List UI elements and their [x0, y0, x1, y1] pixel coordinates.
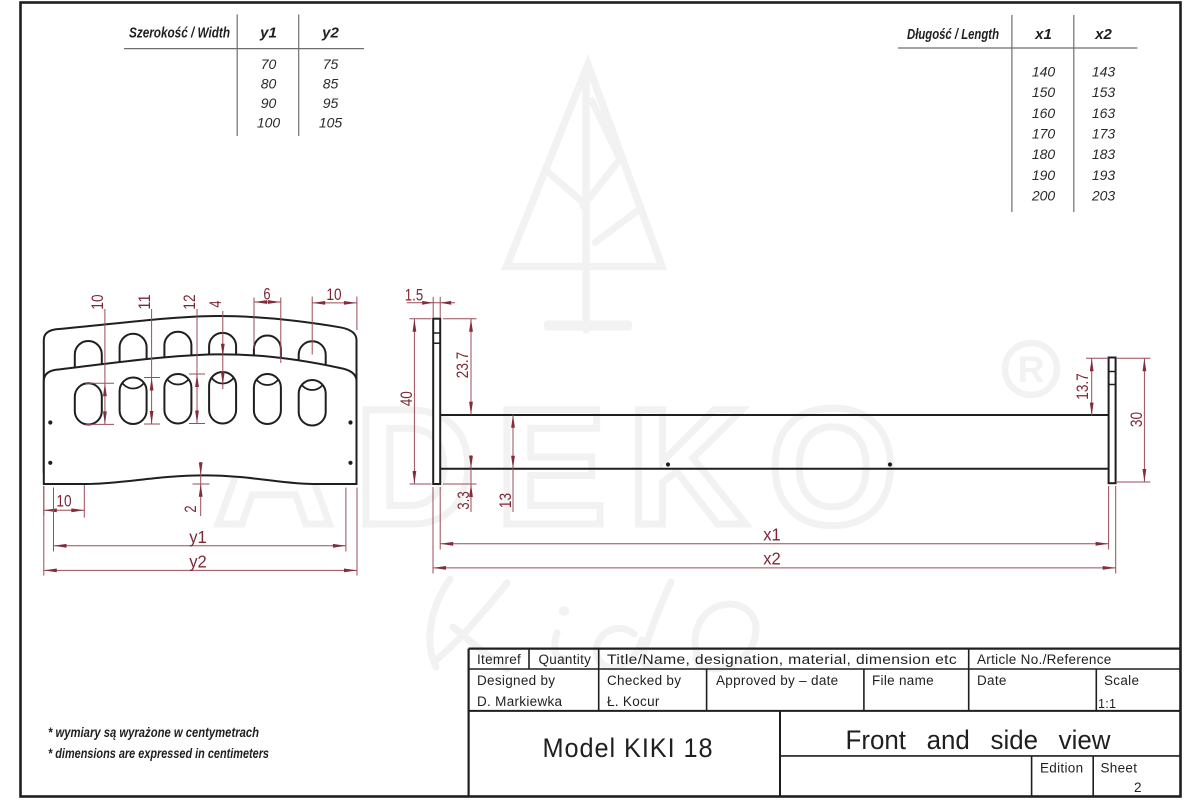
svg-text:200: 200: [1031, 187, 1056, 203]
svg-text:Edition: Edition: [1040, 761, 1083, 776]
svg-text:13.7: 13.7: [1073, 373, 1092, 399]
svg-text:* dimensions are expressed in: * dimensions are expressed in centimeter…: [48, 746, 269, 761]
svg-text:13: 13: [496, 493, 515, 508]
svg-text:Title/Name, designation, mater: Title/Name, designation, material, dimen…: [607, 652, 957, 667]
svg-text:* wymiary są wyrażone w centym: * wymiary są wyrażone w centymetrach: [48, 725, 259, 740]
svg-text:170: 170: [1032, 125, 1056, 141]
svg-text:10: 10: [88, 294, 107, 309]
svg-text:193: 193: [1092, 167, 1116, 183]
svg-text:10: 10: [56, 492, 71, 511]
svg-text:Szerokość / Width: Szerokość / Width: [129, 25, 230, 42]
svg-text:75: 75: [323, 56, 339, 72]
svg-text:y1: y1: [259, 25, 277, 42]
svg-text:x1: x1: [763, 524, 781, 544]
svg-text:163: 163: [1092, 105, 1116, 121]
svg-text:Długość / Length: Długość / Length: [907, 26, 999, 43]
svg-text:Front and side view: Front and side view: [846, 725, 1111, 755]
svg-text:2: 2: [181, 505, 200, 512]
svg-text:143: 143: [1092, 64, 1116, 80]
svg-text:203: 203: [1091, 187, 1116, 203]
svg-text:Checked by: Checked by: [607, 673, 681, 688]
svg-text:150: 150: [1032, 84, 1056, 100]
svg-text:Ł. Kocur: Ł. Kocur: [607, 694, 660, 709]
svg-text:70: 70: [261, 56, 277, 72]
svg-text:140: 140: [1032, 64, 1056, 80]
svg-text:2: 2: [1134, 780, 1142, 795]
svg-text:Article No./Reference: Article No./Reference: [977, 652, 1112, 667]
svg-text:105: 105: [319, 115, 343, 131]
svg-text:12: 12: [180, 294, 199, 309]
svg-text:90: 90: [261, 95, 277, 111]
svg-text:Date: Date: [977, 673, 1007, 688]
svg-text:173: 173: [1092, 125, 1116, 141]
svg-text:y2: y2: [321, 25, 339, 42]
svg-text:Designed by: Designed by: [477, 673, 555, 688]
svg-text:180: 180: [1032, 146, 1056, 162]
svg-text:10: 10: [326, 285, 341, 304]
svg-text:160: 160: [1032, 105, 1056, 121]
svg-text:85: 85: [323, 76, 339, 92]
svg-text:R: R: [1018, 349, 1045, 390]
svg-text:Approved by – date: Approved by – date: [716, 673, 838, 688]
svg-text:100: 100: [257, 115, 281, 131]
svg-text:190: 190: [1032, 167, 1056, 183]
svg-text:80: 80: [261, 76, 277, 92]
svg-text:1:1: 1:1: [1098, 697, 1116, 711]
svg-text:6: 6: [263, 285, 270, 304]
svg-text:y2: y2: [189, 552, 207, 572]
svg-text:153: 153: [1092, 84, 1116, 100]
svg-text:File name: File name: [872, 673, 934, 688]
svg-text:x1: x1: [1034, 26, 1052, 43]
svg-text:Sheet: Sheet: [1101, 761, 1138, 776]
svg-text:D. Markiewka: D. Markiewka: [477, 694, 563, 709]
svg-text:x2: x2: [1094, 26, 1112, 43]
svg-text:Itemref: Itemref: [477, 652, 521, 667]
svg-text:11: 11: [135, 294, 154, 309]
svg-text:x2: x2: [763, 549, 781, 569]
svg-text:183: 183: [1092, 146, 1116, 162]
svg-text:Model KIKI 18: Model KIKI 18: [543, 733, 714, 763]
svg-text:30: 30: [1127, 412, 1146, 427]
svg-text:3.3: 3.3: [454, 491, 473, 509]
svg-text:1.5: 1.5: [405, 285, 423, 304]
svg-text:Quantity: Quantity: [539, 652, 592, 667]
svg-text:Scale: Scale: [1104, 673, 1139, 688]
svg-text:4: 4: [206, 300, 225, 307]
svg-text:95: 95: [323, 95, 339, 111]
svg-text:40: 40: [397, 391, 416, 406]
svg-text:y1: y1: [189, 527, 207, 547]
svg-text:23.7: 23.7: [453, 352, 472, 378]
